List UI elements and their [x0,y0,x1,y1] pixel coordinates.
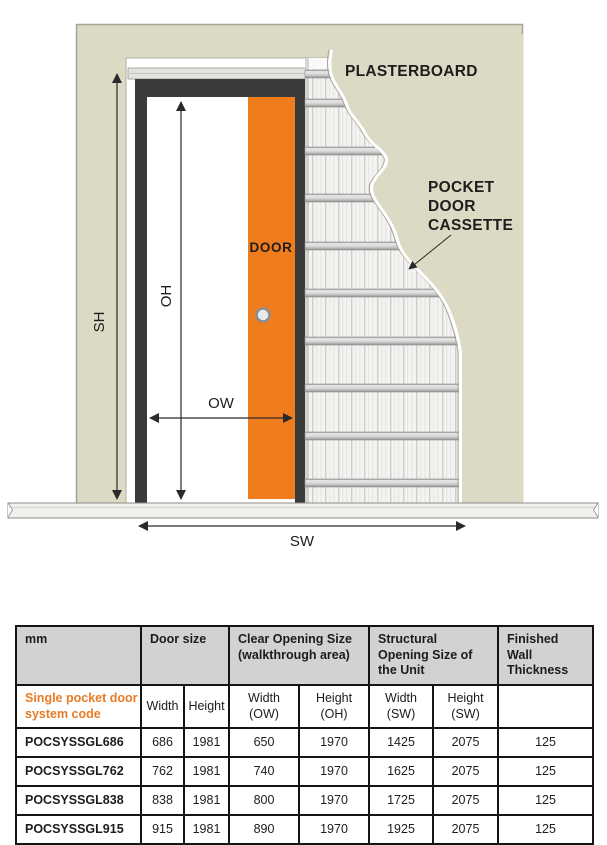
plasterboard-label: PLASTERBOARD [345,63,478,80]
subheader-system-code: Single pocket door system code [16,685,141,728]
subheader-struct-width: Width (SW) [369,685,433,728]
system-code: POCSYSSGL762 [16,757,141,786]
subheader-text: Width [372,690,430,706]
subheader-text: Width [144,698,181,714]
dimension-label-sw: SW [290,533,315,550]
struct-width-value: 1925 [369,815,433,844]
system-code: POCSYSSGL838 [16,786,141,815]
clear-height-value: 1970 [299,757,369,786]
group-header-finished-wall: Finished Wall Thickness [498,626,593,685]
subheader-empty [498,685,593,728]
struct-width-value: 1725 [369,786,433,815]
door-height-value: 1981 [184,757,229,786]
subheader-clear-width: Width (OW) [229,685,299,728]
clear-height-value: 1970 [299,786,369,815]
floor [8,503,598,518]
system-code: POCSYSSGL686 [16,728,141,757]
table-row: POCSYSSGL838 838 1981 800 1970 1725 2075… [16,786,593,815]
door-height-value: 1981 [184,786,229,815]
subheader-door-width: Width [141,685,184,728]
door-width-value: 915 [141,815,184,844]
subheader-text: (OH) [302,706,366,722]
dimension-label-oh: OH [158,285,175,308]
struct-width-value: 1625 [369,757,433,786]
door-width-value: 762 [141,757,184,786]
subheader-door-height: Height [184,685,229,728]
subheader-system-code-line1: Single pocket door [25,690,138,706]
subheader-text: Height [302,690,366,706]
cassette-label-line3: CASSETTE [428,217,513,234]
struct-width-value: 1425 [369,728,433,757]
struct-height-value: 2075 [433,757,498,786]
wall-thickness-value: 125 [498,786,593,815]
subheader-text: Width [232,690,296,706]
table-group-header-row: mm Door size Clear Opening Size (walkthr… [16,626,593,685]
struct-height-value: 2075 [433,728,498,757]
subheader-clear-height: Height (OH) [299,685,369,728]
table-row: POCSYSSGL915 915 1981 890 1970 1925 2075… [16,815,593,844]
door-width-value: 838 [141,786,184,815]
system-code: POCSYSSGL915 [16,815,141,844]
struct-height-value: 2075 [433,786,498,815]
spec-table: mm Door size Clear Opening Size (walkthr… [15,625,594,845]
group-header-mm: mm [16,626,141,685]
door-width-value: 686 [141,728,184,757]
group-header-clear-opening: Clear Opening Size (walkthrough area) [229,626,369,685]
door-label: DOOR [250,240,293,255]
subheader-text: (SW) [372,706,430,722]
table-row: POCSYSSGL686 686 1981 650 1970 1425 2075… [16,728,593,757]
door-handle [257,309,270,322]
wall-thickness-value: 125 [498,728,593,757]
group-header-door-size: Door size [141,626,229,685]
subheader-text: (OW) [232,706,296,722]
table-row: POCSYSSGL762 762 1981 740 1970 1625 2075… [16,757,593,786]
cassette-label-line2: DOOR [428,198,476,215]
dimension-label-sh: SH [91,312,108,333]
subheader-text: (SW) [436,706,495,722]
subheader-system-code-line2: system code [25,706,138,722]
clear-height-value: 1970 [299,815,369,844]
table-subheader-row: Single pocket door system code Width Hei… [16,685,593,728]
subheader-text: Height [187,698,226,714]
catalog-page: { "diagram": { "labels": { "plasterboard… [0,0,607,819]
wall-thickness-value: 125 [498,757,593,786]
subheader-text: Height [436,690,495,706]
door-height-value: 1981 [184,728,229,757]
door-height-value: 1981 [184,815,229,844]
clear-height-value: 1970 [299,728,369,757]
clear-width-value: 800 [229,786,299,815]
group-header-structural-opening: Structural Opening Size of the Unit [369,626,498,685]
struct-height-value: 2075 [433,815,498,844]
cassette-label-line1: POCKET [428,179,495,196]
dimension-label-ow: OW [208,395,235,412]
clear-width-value: 890 [229,815,299,844]
subheader-struct-height: Height (SW) [433,685,498,728]
pocket-door-diagram: PLASTERBOARD POCKET DOOR CASSETTE DOOR S… [0,0,607,600]
clear-width-value: 740 [229,757,299,786]
pocket-door [248,97,295,499]
wall-thickness-value: 125 [498,815,593,844]
clear-width-value: 650 [229,728,299,757]
